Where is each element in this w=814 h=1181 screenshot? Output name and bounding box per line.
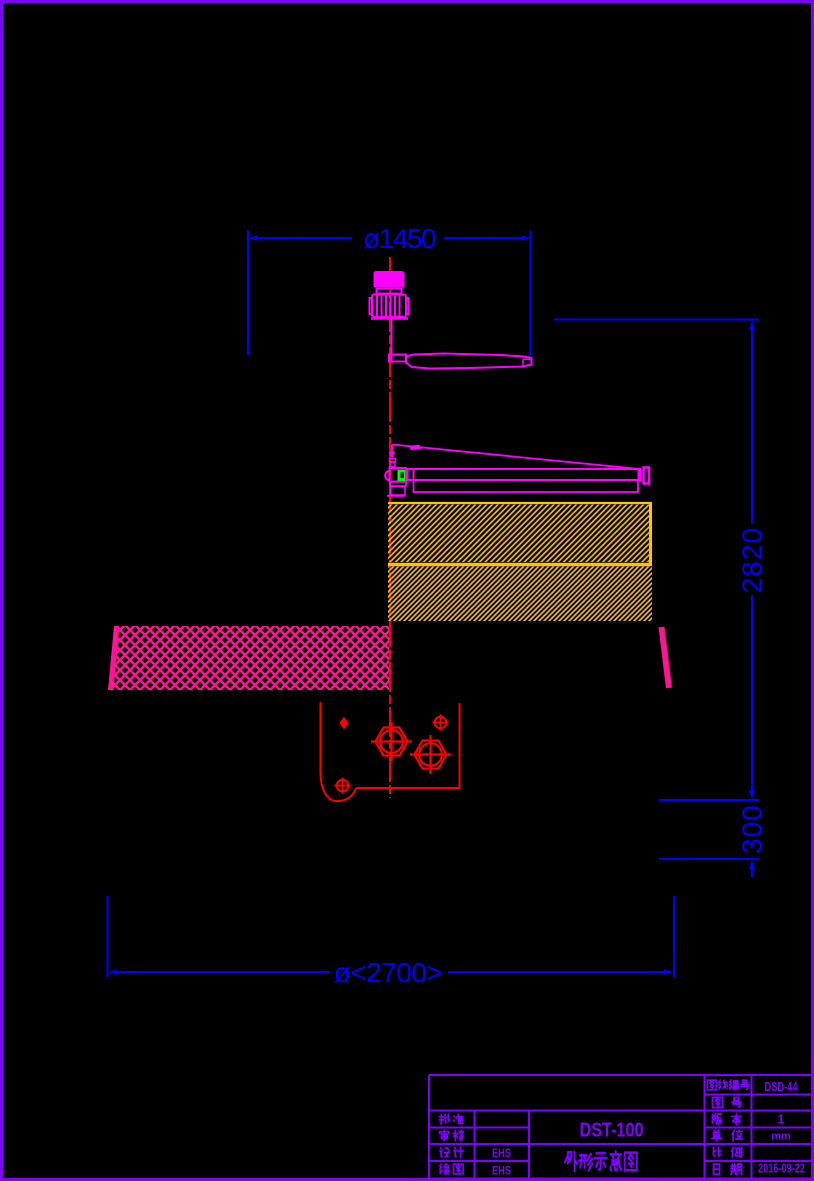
svg-text:2016-09-22: 2016-09-22 xyxy=(758,1162,805,1176)
svg-text:ø1450: ø1450 xyxy=(363,223,436,254)
svg-text:DSD-44: DSD-44 xyxy=(765,1079,799,1094)
svg-text:EHS: EHS xyxy=(492,1146,511,1160)
svg-text:EHS: EHS xyxy=(492,1164,511,1178)
svg-text:ø<2700>: ø<2700> xyxy=(334,957,443,988)
svg-text:1: 1 xyxy=(777,1112,784,1127)
svg-text:2820: 2820 xyxy=(737,527,768,593)
svg-text:mm: mm xyxy=(771,1131,791,1143)
svg-text:DST-100: DST-100 xyxy=(580,1120,644,1142)
svg-text:300: 300 xyxy=(737,804,768,854)
